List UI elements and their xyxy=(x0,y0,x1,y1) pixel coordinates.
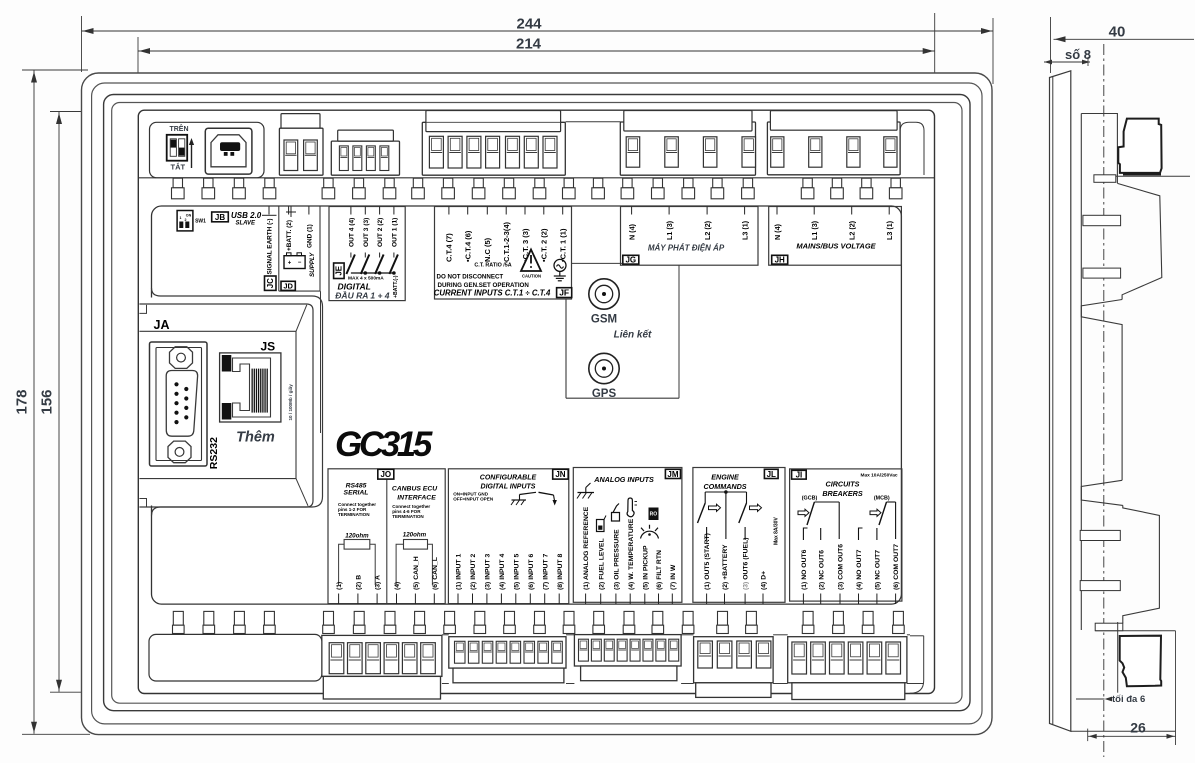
svg-text:(5) NC OUT7: (5) NC OUT7 xyxy=(875,550,882,590)
svg-text:COMMANDS: COMMANDS xyxy=(703,482,746,491)
svg-text:−: − xyxy=(298,260,302,266)
svg-text:Max 10A/250Vac: Max 10A/250Vac xyxy=(860,473,897,479)
svg-text:OUT 4 (4): OUT 4 (4) xyxy=(349,218,356,247)
svg-text:Thêm: Thêm xyxy=(236,430,275,446)
svg-text:•C.T. 2 (2): •C.T. 2 (2) xyxy=(540,228,549,262)
svg-text:(MCB): (MCB) xyxy=(874,496,890,502)
svg-text:120ohm: 120ohm xyxy=(403,532,427,539)
svg-text:(7) IN W: (7) IN W xyxy=(670,564,677,590)
svg-text:N (4): N (4) xyxy=(627,223,636,240)
svg-text:L2 (2): L2 (2) xyxy=(848,220,857,240)
svg-text:TRÊN: TRÊN xyxy=(169,124,188,133)
svg-text:(8) INPUT 8: (8) INPUT 8 xyxy=(557,554,564,590)
svg-text:SIGNAL EARTH (-): SIGNAL EARTH (-) xyxy=(267,219,274,275)
svg-text:số 8: số 8 xyxy=(1065,47,1091,62)
svg-text:GSM: GSM xyxy=(591,314,617,326)
svg-text:(1) ANALOG REFERENCE: (1) ANALOG REFERENCE xyxy=(583,506,590,590)
svg-text:+BATT.(-): +BATT.(-) xyxy=(393,275,399,298)
svg-text:GPS: GPS xyxy=(592,388,617,400)
svg-text:+: + xyxy=(288,261,292,267)
svg-text:(5) INPUT 5: (5) INPUT 5 xyxy=(513,554,520,590)
svg-text:ANALOG INPUTS: ANALOG INPUTS xyxy=(593,475,654,484)
svg-text:(2) FUEL LEVEL: (2) FUEL LEVEL xyxy=(598,538,605,590)
svg-text:(1) OUT5 (START): (1) OUT5 (START) xyxy=(704,533,711,590)
svg-text:CAUTION: CAUTION xyxy=(522,274,541,279)
svg-text:SERIAL: SERIAL xyxy=(344,490,369,497)
svg-text:Liên kết: Liên kết xyxy=(614,329,652,341)
svg-text:TERMINATION: TERMINATION xyxy=(338,512,370,517)
svg-text:(6) INPUT 6: (6) INPUT 6 xyxy=(528,554,535,590)
svg-text:(4) INPUT 4: (4) INPUT 4 xyxy=(499,554,506,590)
svg-text:JN: JN xyxy=(555,470,565,479)
svg-text:USB 2.0: USB 2.0 xyxy=(231,211,262,220)
svg-text:CONFIGURABLE: CONFIGURABLE xyxy=(480,475,537,482)
svg-text:178: 178 xyxy=(14,389,31,414)
svg-text:(1): (1) xyxy=(336,582,343,590)
svg-text:JE: JE xyxy=(335,265,344,275)
svg-text:(3) OIL PRESSURE: (3) OIL PRESSURE xyxy=(614,529,621,590)
svg-text:C.T.1-2-3(4): C.T.1-2-3(4) xyxy=(502,221,511,262)
svg-text:(2) INPUT 2: (2) INPUT 2 xyxy=(470,554,477,590)
svg-text:N.C (5): N.C (5) xyxy=(483,237,492,262)
svg-text:CANBUS ECU: CANBUS ECU xyxy=(392,486,438,493)
svg-text:JA: JA xyxy=(154,318,170,332)
svg-text:tối đa 6: tối đa 6 xyxy=(1112,694,1145,705)
svg-text:(5) IN PICKUP: (5) IN PICKUP xyxy=(642,545,649,590)
svg-text:JH: JH xyxy=(775,256,785,265)
svg-text:(4) W. TEMPERATURE: (4) W. TEMPERATURE xyxy=(628,518,635,590)
svg-text:GND (1): GND (1) xyxy=(306,224,313,248)
svg-text:156: 156 xyxy=(39,389,56,414)
svg-text:120ohm: 120ohm xyxy=(345,533,369,540)
svg-text:OFF=INPUT OPEN: OFF=INPUT OPEN xyxy=(453,497,494,502)
svg-text:Max 8A/30V: Max 8A/30V xyxy=(774,517,780,545)
svg-text:244: 244 xyxy=(516,16,542,33)
svg-text:L1 (3): L1 (3) xyxy=(810,220,819,240)
svg-text:214: 214 xyxy=(516,36,542,53)
svg-text:CURRENT INPUTS C.T.1 ÷ C.T.4: CURRENT INPUTS C.T.1 ÷ C.T.4 xyxy=(434,289,551,298)
svg-text:ENGINE: ENGINE xyxy=(711,473,739,482)
svg-text:(5) CAN_H: (5) CAN_H xyxy=(413,556,420,590)
svg-text:(3) OUT6 (FUEL): (3) OUT6 (FUEL) xyxy=(743,538,750,591)
svg-text:(4) NO OUT7: (4) NO OUT7 xyxy=(856,549,863,590)
svg-text:JB: JB xyxy=(215,213,225,222)
svg-text:SW1: SW1 xyxy=(195,219,206,225)
svg-text:1: 1 xyxy=(180,216,182,220)
svg-text:JI: JI xyxy=(796,471,803,480)
svg-text:(6) FILT RTN: (6) FILT RTN xyxy=(656,550,663,590)
svg-text:INTERFACE: INTERFACE xyxy=(397,495,436,502)
svg-text:JF: JF xyxy=(559,288,569,298)
svg-text:JD: JD xyxy=(283,282,293,291)
svg-text:(2) +BATTERY: (2) +BATTERY xyxy=(722,544,729,590)
svg-text:L3 (1): L3 (1) xyxy=(740,220,749,240)
svg-text:RS232: RS232 xyxy=(208,437,220,469)
svg-text:JM: JM xyxy=(667,470,678,479)
svg-text:•C.T.4 (6): •C.T.4 (6) xyxy=(464,230,473,262)
svg-text:JS: JS xyxy=(261,340,276,354)
svg-text:(GCB): (GCB) xyxy=(802,496,818,502)
svg-text:(7) INPUT 7: (7) INPUT 7 xyxy=(542,554,549,590)
svg-text:2: 2 xyxy=(185,218,187,222)
svg-text:CIRCUITS: CIRCUITS xyxy=(826,480,860,489)
svg-text:TẮT: TẮT xyxy=(171,163,186,172)
svg-text:(3) A: (3) A xyxy=(375,575,382,590)
svg-text:(4) D+: (4) D+ xyxy=(761,571,768,590)
svg-text:N (4): N (4) xyxy=(773,223,782,240)
svg-text:L1 (3): L1 (3) xyxy=(665,220,674,240)
svg-text:DO NOT DISCONNECT: DO NOT DISCONNECT xyxy=(437,274,504,281)
svg-text:TERMINATION: TERMINATION xyxy=(392,514,424,519)
svg-text:(6) COM OUT7: (6) COM OUT7 xyxy=(893,544,900,590)
svg-text:JO: JO xyxy=(380,470,391,479)
svg-text:26: 26 xyxy=(1130,720,1146,736)
svg-text:(3) COM OUT6: (3) COM OUT6 xyxy=(838,544,845,590)
svg-text:RS485: RS485 xyxy=(346,483,367,490)
svg-text:•C.T. 1 (1): •C.T. 1 (1) xyxy=(559,228,568,262)
svg-text:ON: ON xyxy=(186,214,192,218)
svg-text:JG: JG xyxy=(625,256,636,265)
svg-text:SLAVE: SLAVE xyxy=(236,221,257,227)
svg-text:(1) INPUT 1: (1) INPUT 1 xyxy=(456,554,463,590)
svg-text:C.T.4 (7): C.T.4 (7) xyxy=(445,233,454,262)
svg-text:DIGITAL INPUTS: DIGITAL INPUTS xyxy=(481,484,536,491)
svg-text:SUPPLY: SUPPLY xyxy=(309,252,316,277)
svg-text:(4): (4) xyxy=(394,582,401,590)
svg-text:40: 40 xyxy=(1109,24,1126,41)
svg-text:+BATT. (2): +BATT. (2) xyxy=(286,220,293,251)
svg-text:OUT 1 (1): OUT 1 (1) xyxy=(392,218,399,247)
svg-text:(6) CAN_L: (6) CAN_L xyxy=(432,557,439,590)
svg-text:OUT 2 (2): OUT 2 (2) xyxy=(377,218,384,247)
svg-text:C.T. RATIO /5A: C.T. RATIO /5A xyxy=(474,263,511,269)
svg-text:L3 (1): L3 (1) xyxy=(885,220,894,240)
svg-text:(1) NO OUT6: (1) NO OUT6 xyxy=(801,549,808,590)
svg-text:MÁY PHÁT ĐIỆN ÁP: MÁY PHÁT ĐIỆN ÁP xyxy=(648,244,725,253)
svg-text:(2) NC OUT6: (2) NC OUT6 xyxy=(818,550,825,590)
svg-text:10 / 100Mb / giây: 10 / 100Mb / giây xyxy=(288,384,293,421)
svg-text:JC: JC xyxy=(266,278,275,288)
svg-text:(2) B: (2) B xyxy=(356,575,363,590)
svg-text:(3) INPUT 3: (3) INPUT 3 xyxy=(485,554,492,590)
svg-text:BREAKERS: BREAKERS xyxy=(822,489,863,498)
svg-text:JL: JL xyxy=(767,470,776,479)
svg-text:MAINS/BUS VOLTAGE: MAINS/BUS VOLTAGE xyxy=(796,242,876,251)
svg-text:ĐẦU RA 1 + 4: ĐẦU RA 1 + 4 xyxy=(335,291,390,301)
svg-text:RO: RO xyxy=(650,512,658,518)
svg-text:L2 (2): L2 (2) xyxy=(703,220,712,240)
svg-text:OUT 3 (3): OUT 3 (3) xyxy=(363,218,370,247)
svg-text:GC315: GC315 xyxy=(335,425,433,464)
